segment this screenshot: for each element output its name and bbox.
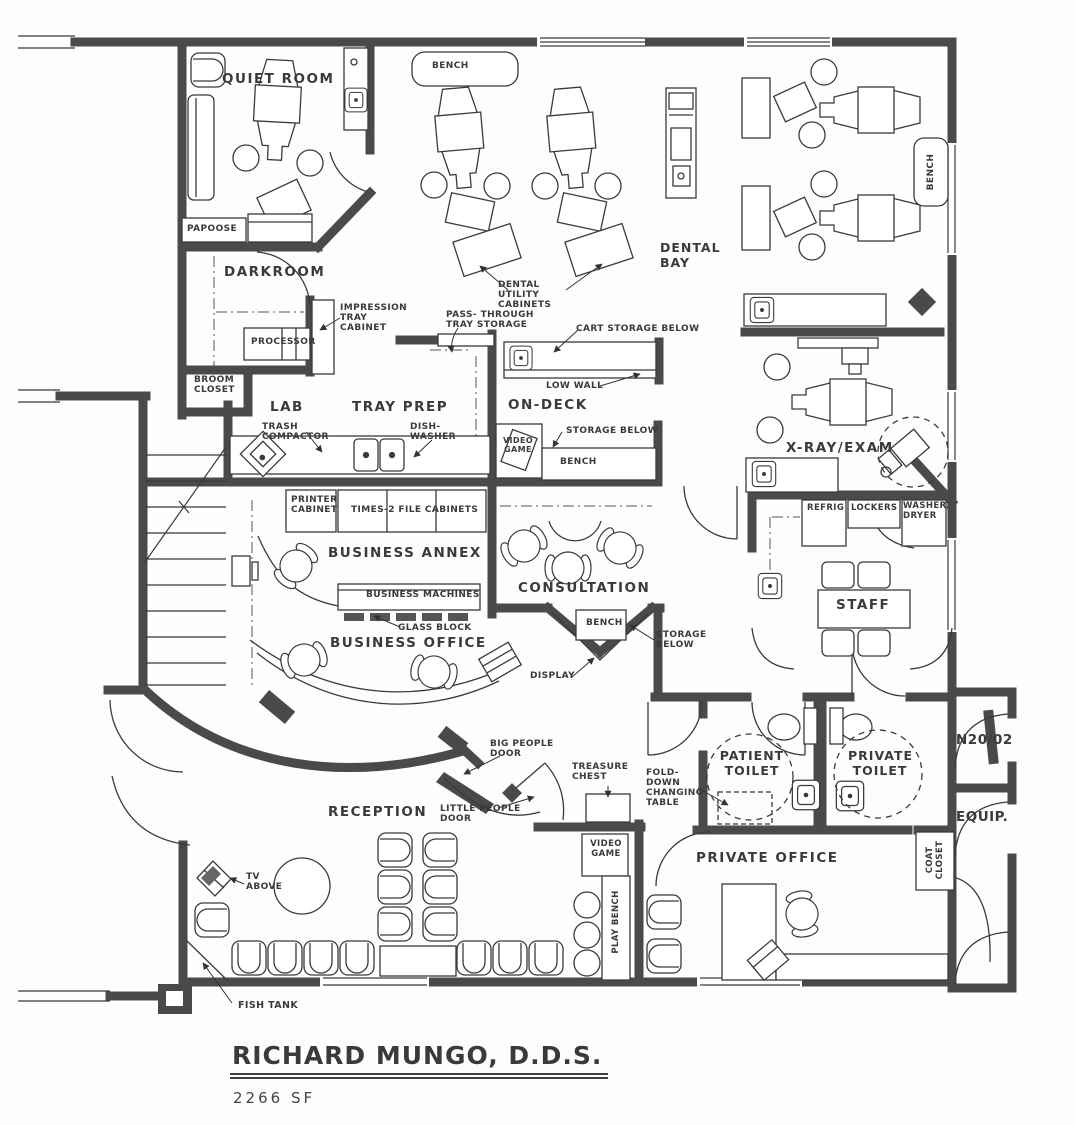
room-label-n2o-o2: N20/02: [956, 733, 1013, 748]
bench-label-top: BENCH: [432, 61, 469, 71]
room-label-private-toilet: PRIVATE TOILET: [848, 748, 912, 778]
room-label-consultation: CONSULTATION: [518, 581, 650, 596]
room-label-reception: RECEPTION: [328, 805, 427, 820]
treasure-chest-label: TREASURE CHEST: [572, 762, 638, 782]
printer-cabinet-label: PRINTER CABINET: [291, 495, 345, 515]
room-label-private-office: PRIVATE OFFICE: [696, 851, 838, 866]
trash-compactor-label: TRASH COMPACTOR: [262, 422, 324, 442]
room-label-tray-prep: TRAY PREP: [352, 400, 448, 415]
room-label-staff: STAFF: [836, 598, 890, 613]
room-label-darkroom: DARKROOM: [224, 265, 325, 280]
room-label-lab: LAB: [270, 400, 304, 415]
low-wall-label: LOW WALL: [546, 381, 603, 391]
bench-label-consultation: BENCH: [586, 618, 623, 628]
video-game-label-ondeck: VIDEO GAME: [498, 437, 538, 455]
coat-closet-label: COAT CLOSET: [925, 836, 945, 884]
room-label-business-office: BUSINESS OFFICE: [330, 636, 487, 651]
display-label: DISPLAY: [530, 671, 575, 681]
processor-label: PROCESSOR: [251, 337, 316, 347]
bench-label-right: BENCH: [926, 154, 936, 191]
dental-utility-cabinets-label: DENTAL UTILITY CABINETS: [498, 280, 582, 310]
impression-tray-cabinet-label: IMPRESSION TRAY CABINET: [340, 303, 406, 333]
room-label-xray-exam: X-RAY/EXAM: [786, 441, 894, 456]
cart-storage-label: CART STORAGE BELOW: [576, 324, 699, 334]
storage-below-label-consultation: STORAGE BELOW: [656, 630, 710, 650]
file-cabinets-label: TIMES-2 FILE CABINETS: [351, 505, 478, 515]
little-people-door-label: LITTLE PEOPLE DOOR: [440, 804, 526, 824]
room-label-equip: EQUIP.: [956, 810, 1008, 825]
video-game-label-reception: VIDEO GAME: [584, 840, 628, 859]
bench-label-ondeck: BENCH: [560, 457, 597, 467]
room-label-on-deck: ON-DECK: [508, 398, 588, 413]
washer-dryer-label: WASHER/ DRYER: [903, 502, 949, 521]
tv-above-label: TV ABOVE: [246, 872, 290, 892]
lockers-label: LOCKERS: [851, 504, 897, 514]
storage-below-label-ondeck: STORAGE BELOW: [566, 426, 658, 436]
room-label-quiet-room: QUIET ROOM: [222, 72, 334, 87]
broom-closet-label: BROOM CLOSET: [194, 375, 244, 395]
glass-block-label: GLASS BLOCK: [398, 623, 472, 633]
play-bench-label: PLAY BENCH: [611, 890, 621, 953]
room-label-dental-bay: DENTAL BAY: [660, 240, 732, 270]
papoose-label: PAPOOSE: [187, 224, 237, 234]
room-label-business-annex: BUSINESS ANNEX: [328, 546, 482, 561]
dish-washer-label: DISH- WASHER: [410, 422, 458, 442]
pass-through-label: PASS- THROUGH TRAY STORAGE: [446, 310, 536, 330]
fish-tank-label: FISH TANK: [238, 1001, 298, 1012]
business-machines-label: BUSINESS MACHINES: [366, 590, 480, 600]
refrig-label: REFRIG: [807, 504, 844, 514]
floorplan: QUIET ROOM BENCH DENTAL BAY BENCH PAPOOS…: [0, 0, 1075, 1125]
room-label-patient-toilet: PATIENT TOILET: [717, 748, 787, 778]
floorplan-linework: [0, 0, 1075, 1125]
plan-title: RICHARD MUNGO, D.D.S.: [230, 1042, 608, 1079]
fold-down-changing-table-label: FOLD-DOWN CHANGING TABLE: [646, 768, 712, 808]
plan-area: 2266 SF: [233, 1090, 315, 1107]
big-people-door-label: BIG PEOPLE DOOR: [490, 739, 566, 759]
